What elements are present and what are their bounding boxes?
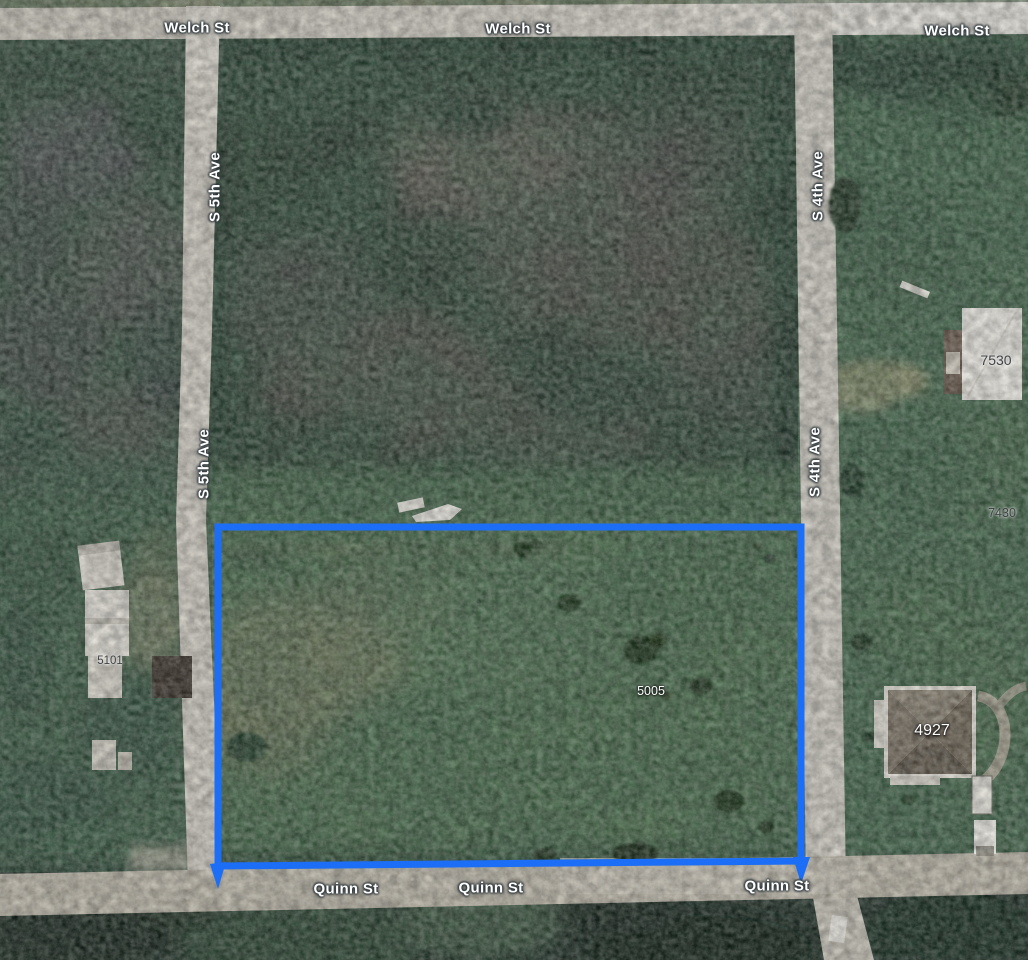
satellite-map-canvas[interactable]: Welch St Welch St Welch St S 5th Ave S 5… — [0, 0, 1028, 960]
satellite-imagery — [0, 0, 1028, 960]
grain-light — [0, 0, 1028, 960]
